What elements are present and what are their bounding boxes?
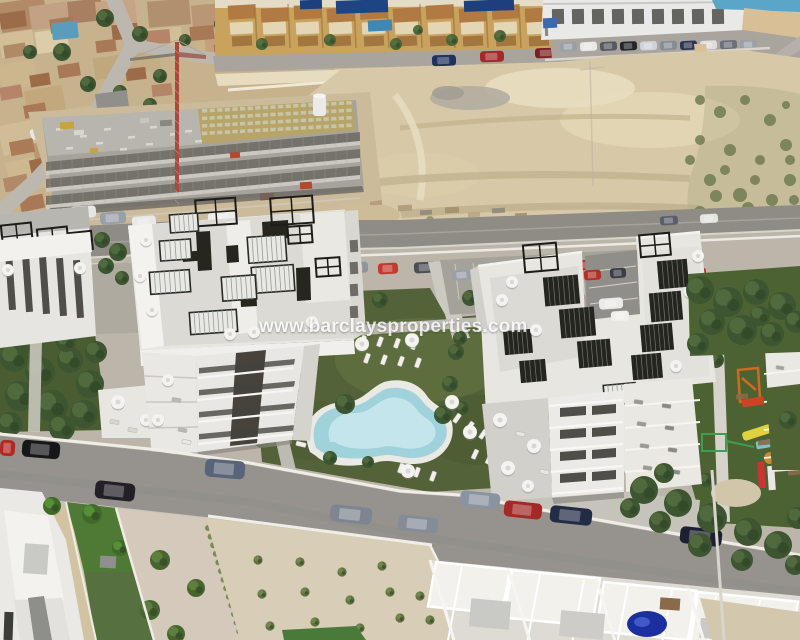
svg-text:www.barclaysproperties.com: www.barclaysproperties.com xyxy=(258,316,527,337)
